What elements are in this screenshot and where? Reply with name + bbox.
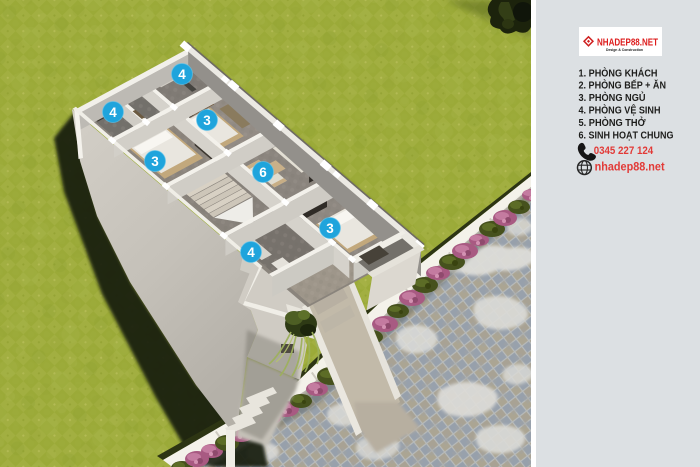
svg-text:4: 4 bbox=[178, 67, 186, 82]
svg-text:nhadep88.net: nhadep88.net bbox=[595, 160, 665, 173]
svg-text:NHADEP88.NET: NHADEP88.NET bbox=[597, 37, 658, 48]
svg-text:4. PHÒNG VỆ SINH: 4. PHÒNG VỆ SINH bbox=[579, 104, 661, 117]
svg-text:6. SINH HOẠT CHUNG: 6. SINH HOẠT CHUNG bbox=[579, 131, 674, 142]
svg-text:3: 3 bbox=[203, 113, 211, 128]
svg-text:1. PHÒNG KHÁCH: 1. PHÒNG KHÁCH bbox=[579, 66, 658, 79]
svg-text:3. PHÒNG NGỦ: 3. PHÒNG NGỦ bbox=[579, 91, 646, 104]
svg-text:4: 4 bbox=[247, 245, 255, 260]
svg-text:5. PHÒNG THỞ: 5. PHÒNG THỞ bbox=[579, 116, 646, 129]
svg-text:6: 6 bbox=[259, 165, 267, 180]
svg-text:Design & Construction: Design & Construction bbox=[606, 48, 643, 52]
svg-text:4: 4 bbox=[109, 105, 117, 120]
svg-text:2. PHÒNG BẾP + ĂN: 2. PHÒNG BẾP + ĂN bbox=[579, 79, 667, 92]
svg-text:3: 3 bbox=[326, 221, 334, 236]
svg-text:3: 3 bbox=[151, 154, 159, 169]
svg-text:0345 227 124: 0345 227 124 bbox=[594, 145, 654, 157]
